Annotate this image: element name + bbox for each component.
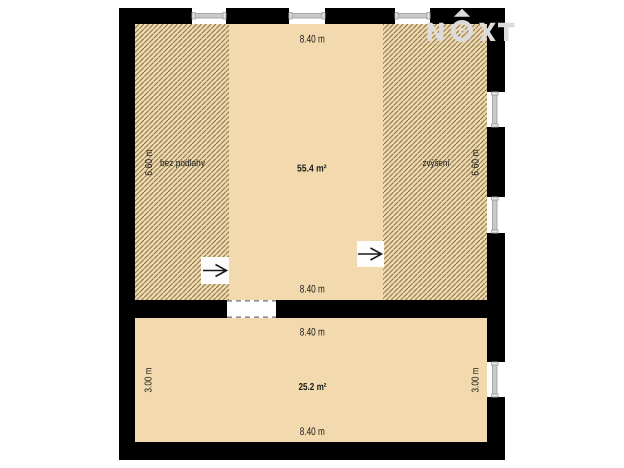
svg-text:25.2 m²: 25.2 m² — [299, 382, 328, 393]
svg-text:8.40 m: 8.40 m — [300, 327, 325, 339]
svg-text:6.60 m: 6.60 m — [144, 149, 155, 176]
svg-text:6.60 m: 6.60 m — [471, 149, 482, 176]
svg-text:8.40 m: 8.40 m — [300, 284, 325, 296]
svg-text:55.4 m²: 55.4 m² — [297, 163, 327, 174]
svg-text:3.00 m: 3.00 m — [144, 368, 155, 393]
svg-text:zvýšení: zvýšení — [423, 158, 450, 169]
svg-text:8.40 m: 8.40 m — [300, 426, 325, 438]
svg-text:bez podlahy: bez podlahy — [160, 158, 205, 169]
svg-text:3.00 m: 3.00 m — [471, 368, 482, 393]
svg-text:8.40 m: 8.40 m — [300, 34, 325, 46]
